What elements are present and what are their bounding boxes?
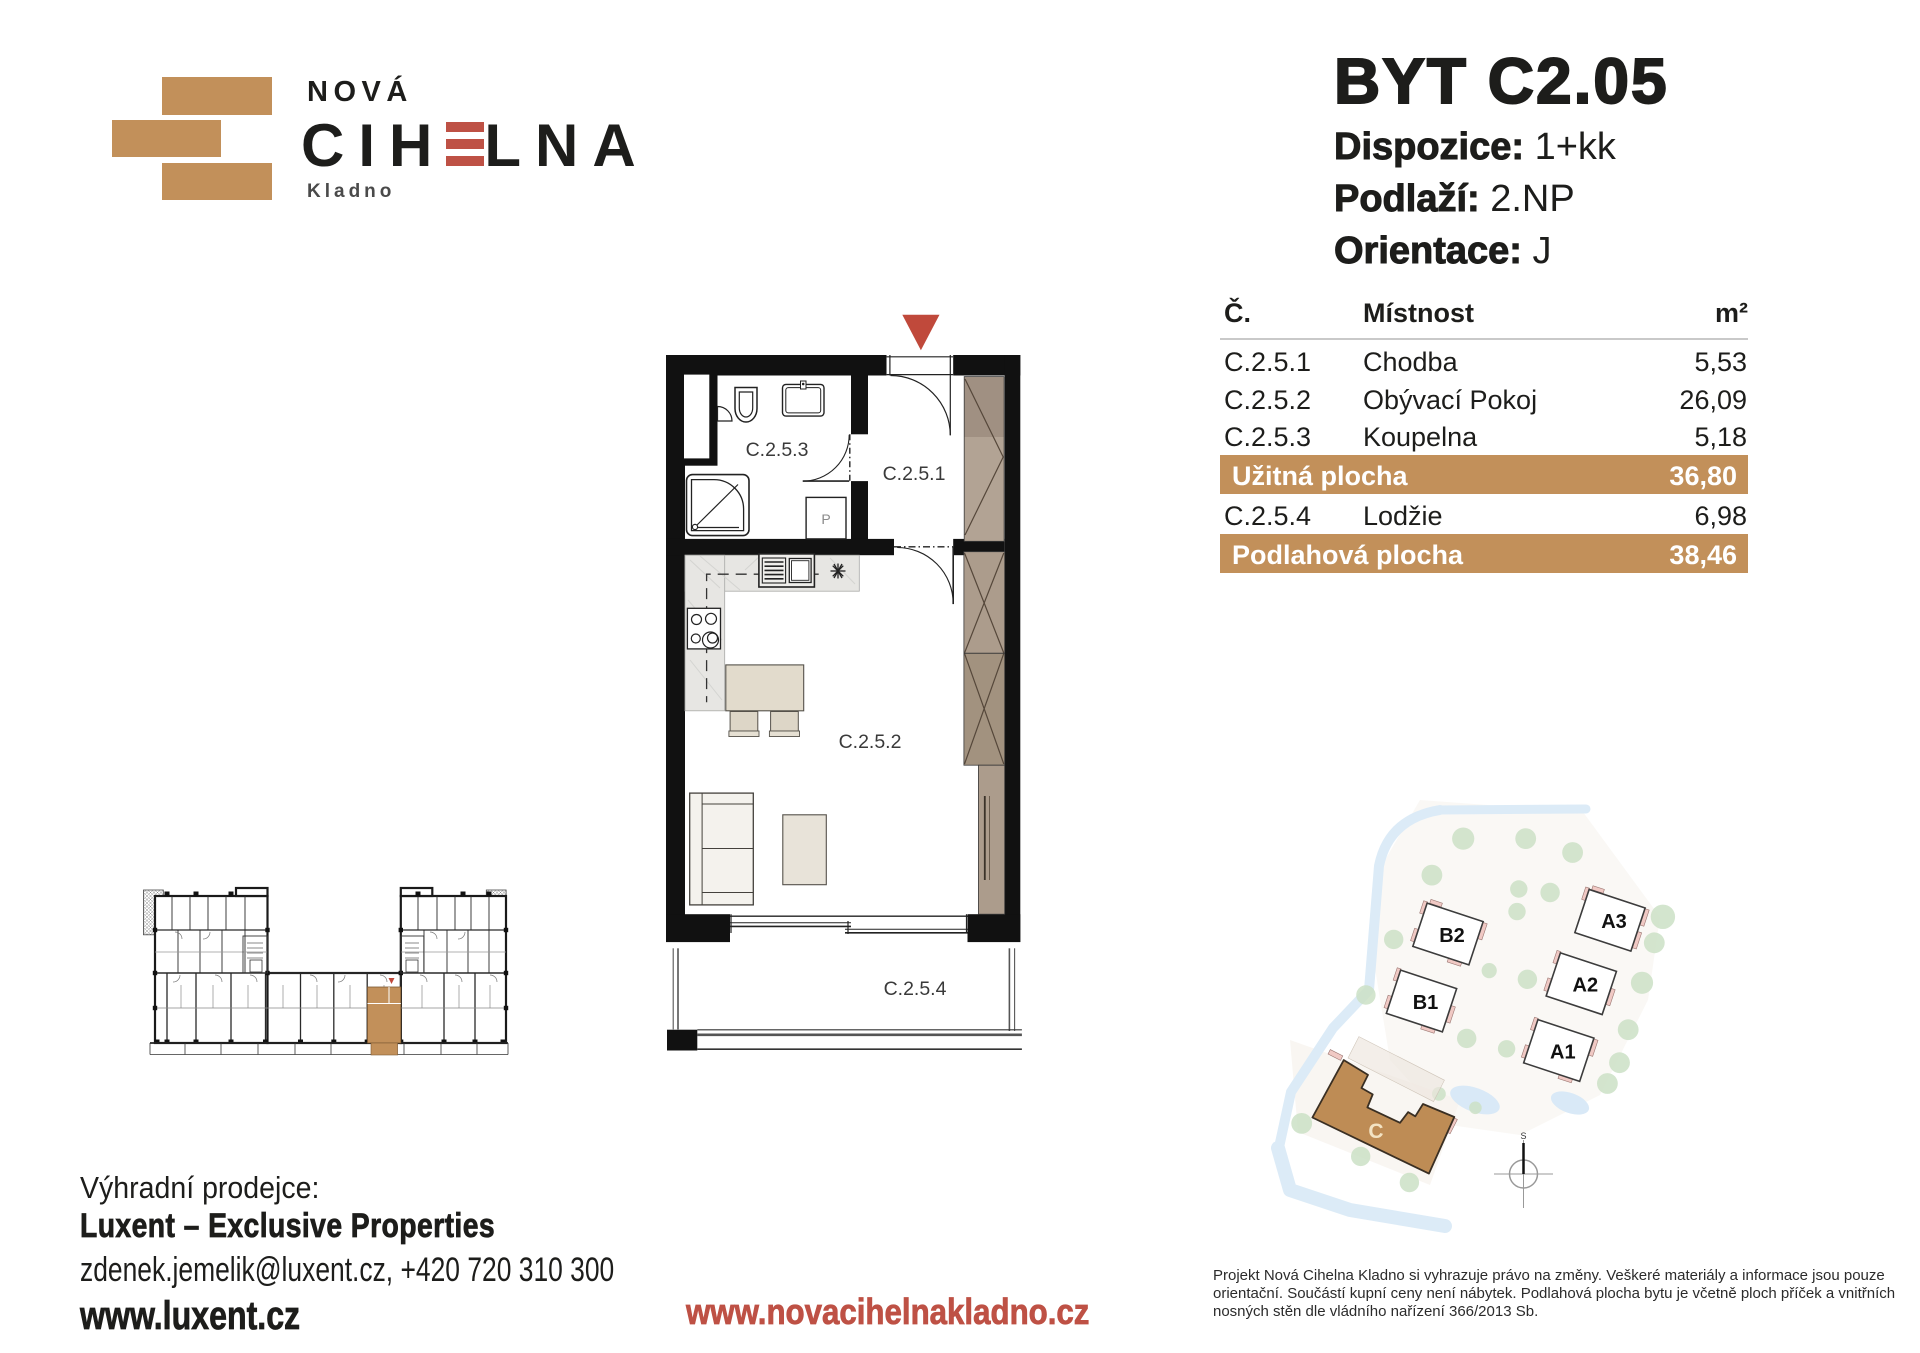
svg-text:B2: B2	[1439, 925, 1465, 947]
svg-text:C.2.5.4: C.2.5.4	[884, 978, 947, 1000]
svg-text:C.2.5.3: C.2.5.3	[746, 439, 809, 461]
svg-text:C.2.5.2: C.2.5.2	[839, 731, 902, 753]
svg-text:C.2.5.1: C.2.5.1	[883, 463, 946, 485]
svg-text:P: P	[821, 511, 830, 527]
svg-text:A1: A1	[1550, 1042, 1576, 1064]
svg-text:A2: A2	[1573, 975, 1599, 997]
svg-text:B1: B1	[1413, 992, 1439, 1014]
svg-text:A3: A3	[1601, 911, 1627, 933]
svg-text:C: C	[1368, 1120, 1383, 1143]
svg-text:S: S	[1520, 1131, 1526, 1141]
